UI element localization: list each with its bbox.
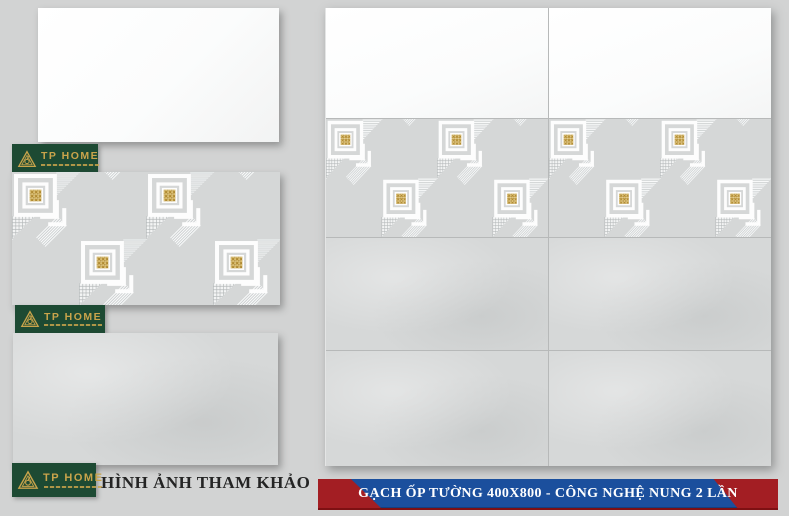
tp-home-logo-badge: TP HOME [12, 144, 98, 173]
wall-tile-decor [326, 119, 548, 237]
decor-pattern [326, 119, 548, 237]
brand-name: TP HOME [41, 151, 99, 162]
brand-tagline-line [44, 486, 102, 488]
sample-tile-white [38, 8, 279, 142]
product-title-banner: GẠCH ỐP TƯỜNG 400X800 - CÔNG NGHỆ NUNG 2… [318, 479, 778, 510]
brand-tagline-line [44, 324, 102, 326]
wall-tile-grey [326, 351, 548, 466]
sample-tile-decor [12, 172, 280, 305]
reference-caption: HÌNH ẢNH THAM KHẢO [101, 468, 310, 498]
wall-tile-grey [326, 238, 548, 350]
banner-title: GẠCH ỐP TƯỜNG 400X800 - CÔNG NGHỆ NUNG 2… [318, 479, 778, 508]
brand-name: TP HOME [44, 312, 102, 323]
tp-home-triangle-icon [20, 310, 40, 328]
tp-home-logo-badge: TP HOME [12, 463, 96, 497]
brand-tagline-line [41, 164, 99, 166]
sample-tile-grey [13, 333, 278, 465]
wall-preview-panel [325, 8, 771, 466]
tp-home-triangle-icon [17, 150, 37, 168]
product-sheet: TP HOME TP HOME TP HOME [0, 0, 789, 516]
decor-pattern [549, 119, 771, 237]
wall-tile-grey [549, 238, 771, 350]
wall-tile-grey [549, 351, 771, 466]
decor-pattern [12, 172, 280, 305]
tp-home-logo-badge: TP HOME [15, 305, 105, 333]
wall-tile-white [326, 8, 548, 118]
brand-name: TP HOME [43, 473, 103, 484]
wall-tile-decor [549, 119, 771, 237]
wall-tile-white [549, 8, 771, 118]
tp-home-triangle-icon [17, 470, 39, 490]
